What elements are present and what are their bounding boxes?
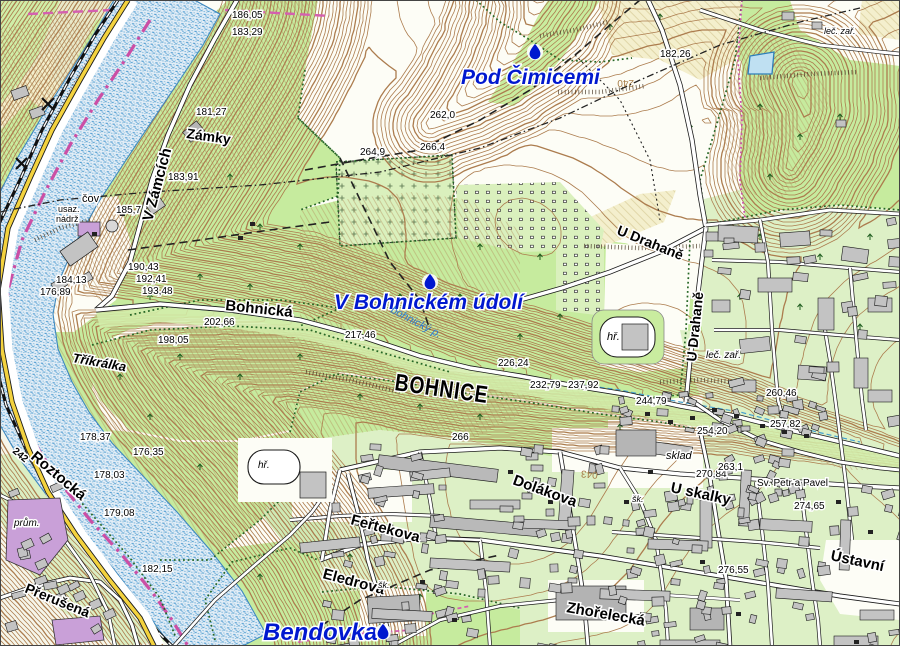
- svg-text:šk.: šk.: [378, 580, 390, 590]
- svg-text:202,66: 202,66: [204, 317, 235, 328]
- svg-text:Bendovka: Bendovka: [263, 619, 378, 646]
- svg-text:257,82: 257,82: [770, 419, 801, 430]
- svg-text:262,0: 262,0: [430, 110, 455, 121]
- svg-text:leč. zař.: leč. zař.: [706, 350, 741, 361]
- svg-text:182,26: 182,26: [660, 49, 691, 60]
- svg-text:179,08: 179,08: [104, 508, 135, 519]
- svg-text:274,65: 274,65: [794, 501, 825, 512]
- svg-text:hř.: hř.: [258, 460, 270, 471]
- svg-text:192,41: 192,41: [136, 274, 167, 285]
- svg-text:193,48: 193,48: [142, 286, 173, 297]
- svg-text:Pod Čimicemi: Pod Čimicemi: [461, 65, 601, 89]
- svg-text:266: 266: [452, 432, 469, 443]
- svg-text:183,29: 183,29: [232, 27, 263, 38]
- svg-text:254,20: 254,20: [697, 426, 728, 437]
- svg-text:181,27: 181,27: [196, 107, 227, 118]
- svg-text:182,15: 182,15: [142, 564, 173, 575]
- svg-text:hř.: hř.: [607, 331, 620, 343]
- svg-text:263,1: 263,1: [718, 462, 743, 473]
- svg-text:leč. zař.: leč. zař.: [824, 26, 856, 36]
- svg-text:čov: čov: [82, 193, 100, 205]
- svg-text:240: 240: [617, 77, 634, 88]
- svg-text:266,4: 266,4: [420, 142, 445, 153]
- svg-text:usaz.: usaz.: [58, 204, 80, 214]
- svg-text:prům.: prům.: [13, 517, 40, 529]
- svg-text:176,89: 176,89: [40, 287, 71, 298]
- svg-text:226,24: 226,24: [498, 358, 529, 369]
- svg-text:260,46: 260,46: [766, 388, 797, 399]
- svg-text:178,03: 178,03: [94, 470, 125, 481]
- svg-text:sklad: sklad: [666, 450, 693, 462]
- svg-text:237,92: 237,92: [568, 380, 599, 391]
- svg-text:217,46: 217,46: [345, 330, 376, 341]
- svg-text:nádrž: nádrž: [56, 214, 79, 224]
- svg-text:276,55: 276,55: [718, 565, 749, 576]
- svg-text:183,91: 183,91: [168, 172, 199, 183]
- svg-text:176,35: 176,35: [133, 447, 164, 458]
- svg-text:198,05: 198,05: [158, 335, 189, 346]
- svg-text:232,79: 232,79: [530, 380, 561, 391]
- svg-text:šk.: šk.: [632, 494, 644, 504]
- svg-text:V Bohnickém údolí: V Bohnickém údolí: [334, 291, 526, 314]
- svg-text:244,79: 244,79: [636, 396, 667, 407]
- svg-text:185,7: 185,7: [116, 205, 141, 216]
- svg-text:264,9: 264,9: [360, 147, 385, 158]
- svg-text:178,37: 178,37: [80, 432, 111, 443]
- svg-text:184,13: 184,13: [56, 275, 87, 286]
- svg-text:186,05: 186,05: [232, 10, 263, 21]
- svg-text:043: 043: [580, 468, 598, 480]
- svg-text:Sv. Petr a Pavel: Sv. Petr a Pavel: [757, 478, 828, 489]
- svg-text:190,43: 190,43: [128, 262, 159, 273]
